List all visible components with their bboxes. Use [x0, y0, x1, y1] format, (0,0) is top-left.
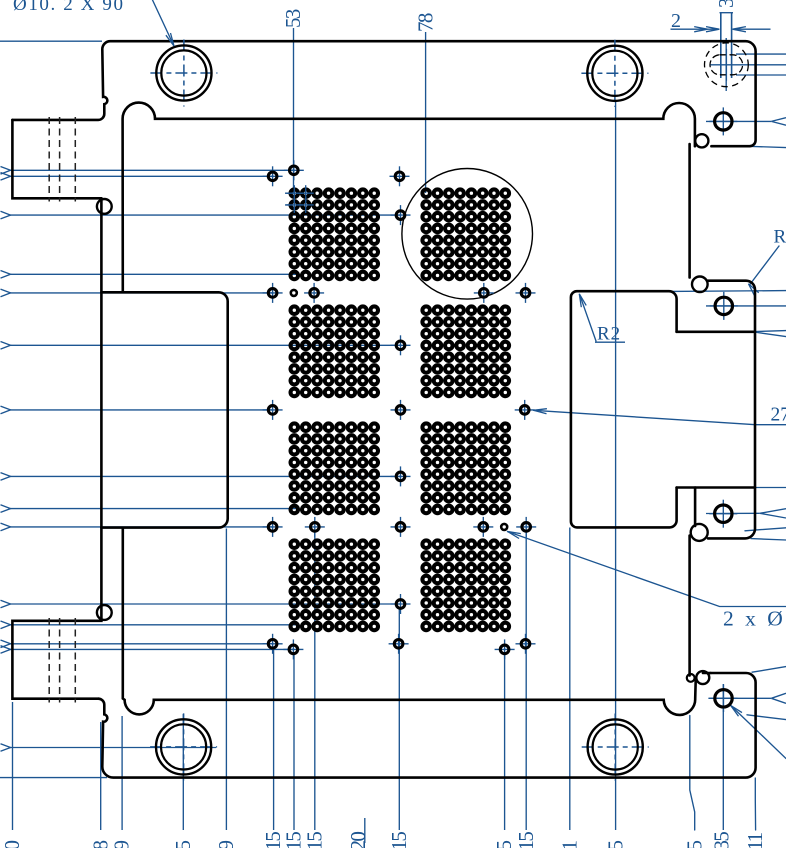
svg-text:R2: R2	[774, 227, 786, 248]
svg-text:20: 20	[346, 832, 370, 848]
svg-text:15: 15	[387, 832, 411, 848]
svg-text:15: 15	[514, 832, 538, 848]
svg-text:5: 5	[171, 841, 195, 848]
svg-text:53: 53	[281, 9, 305, 28]
svg-text:78: 78	[413, 13, 437, 32]
svg-text:35: 35	[709, 832, 733, 848]
svg-text:11: 11	[743, 832, 767, 848]
svg-text:27: 27	[771, 405, 786, 426]
svg-text:2 x Ø: 2 x Ø	[723, 607, 786, 631]
svg-text:1: 1	[557, 841, 581, 848]
svg-text:2: 2	[671, 10, 681, 32]
svg-text:0: 0	[0, 841, 24, 848]
svg-text:R2: R2	[597, 324, 621, 345]
svg-text:5: 5	[604, 841, 628, 848]
svg-text:5: 5	[492, 841, 516, 848]
svg-text:5: 5	[682, 841, 706, 848]
svg-text:3: 3	[714, 0, 738, 8]
svg-text:8: 8	[88, 841, 112, 848]
svg-text:9: 9	[214, 841, 238, 848]
svg-text:Ø10. 2 X 90: Ø10. 2 X 90	[13, 0, 125, 15]
svg-text:9: 9	[110, 841, 134, 848]
svg-text:15: 15	[302, 832, 326, 848]
